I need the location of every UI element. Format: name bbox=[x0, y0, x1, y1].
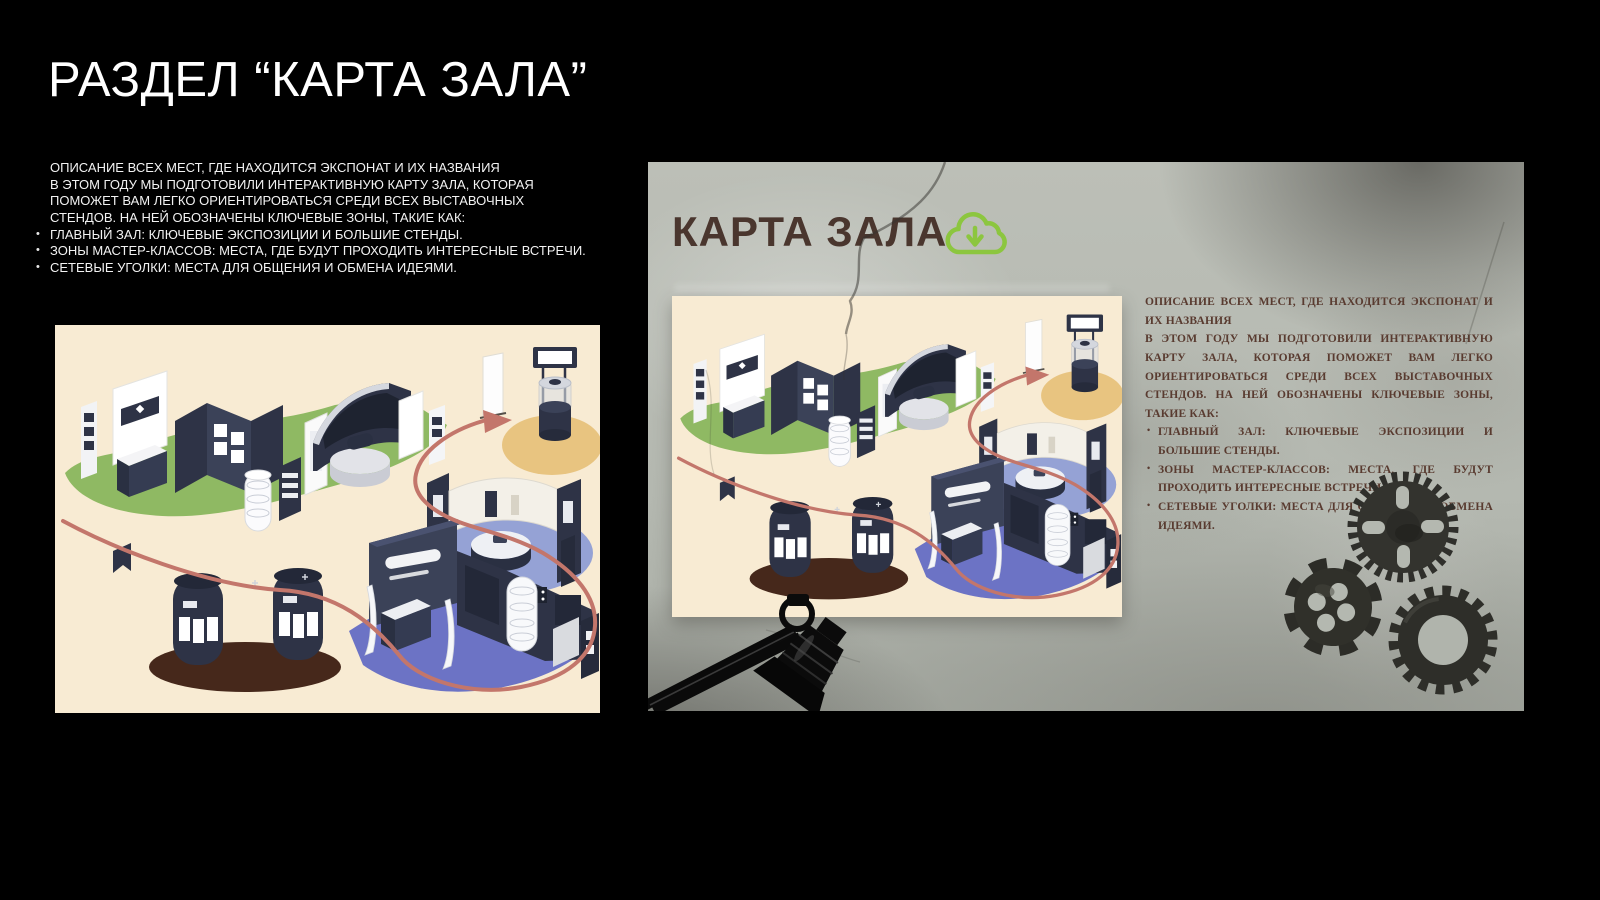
mockup-zone-list-item: ЗОНЫ МАСТЕР-КЛАССОВ: МЕСТА, ГДЕ БУДУТ ПР… bbox=[1145, 461, 1493, 498]
zone-list-item: СЕТЕВЫЕ УГОЛКИ: МЕСТА ДЛЯ ОБЩЕНИЯ И ОБМЕ… bbox=[36, 260, 592, 277]
zone-list-item: ЗОНЫ МАСТЕР-КЛАССОВ: МЕСТА, ГДЕ БУДУТ ПР… bbox=[36, 243, 592, 260]
faded-subtitle-placeholder bbox=[674, 284, 1110, 293]
zone-list-item: ГЛАВНЫЙ ЗАЛ: КЛЮЧЕВЫЕ ЭКСПОЗИЦИИ И БОЛЬШ… bbox=[36, 227, 592, 244]
mockup-title: КАРТА ЗАЛА bbox=[672, 208, 947, 256]
mockup-description-line-2: В ЭТОМ ГОДУ МЫ ПОДГОТОВИЛИ ИНТЕРАКТИВНУЮ… bbox=[1145, 330, 1493, 423]
zone-list: ГЛАВНЫЙ ЗАЛ: КЛЮЧЕВЫЕ ЭКСПОЗИЦИИ И БОЛЬШ… bbox=[36, 227, 592, 277]
mockup-description-line-1: ОПИСАНИЕ ВСЕХ МЕСТ, ГДЕ НАХОДИТСЯ ЭКСПОН… bbox=[1145, 293, 1493, 330]
gear-ring-icon bbox=[1389, 586, 1497, 694]
mockup-zone-list-item: СЕТЕВЫЕ УГОЛКИ: МЕСТА ДЛЯ ОБЩЕНИЯ И ОБМЕ… bbox=[1145, 498, 1493, 535]
hall-map-svg bbox=[55, 325, 600, 713]
description-line-2: В ЭТОМ ГОДУ МЫ ПОДГОТОВИЛИ ИНТЕРАКТИВНУЮ… bbox=[36, 177, 592, 227]
hall-map-illustration bbox=[55, 325, 600, 713]
mockup-zone-list: ГЛАВНЫЙ ЗАЛ: КЛЮЧЕВЫЕ ЭКСПОЗИЦИИ И БОЛЬШ… bbox=[1145, 423, 1493, 535]
gear-holes-icon bbox=[1282, 556, 1384, 658]
slide-description: ОПИСАНИЕ ВСЕХ МЕСТ, ГДЕ НАХОДИТСЯ ЭКСПОН… bbox=[36, 160, 592, 276]
mockup-hall-map-svg bbox=[672, 296, 1122, 617]
description-line-1: ОПИСАНИЕ ВСЕХ МЕСТ, ГДЕ НАХОДИТСЯ ЭКСПОН… bbox=[36, 160, 592, 177]
cloud-download-icon[interactable] bbox=[940, 206, 1010, 264]
slide: РАЗДЕЛ “КАРТА ЗАЛА” ОПИСАНИЕ ВСЕХ МЕСТ, … bbox=[0, 0, 1600, 900]
page-title: РАЗДЕЛ “КАРТА ЗАЛА” bbox=[48, 52, 587, 108]
mockup-zone-list-item: ГЛАВНЫЙ ЗАЛ: КЛЮЧЕВЫЕ ЭКСПОЗИЦИИ И БОЛЬШ… bbox=[1145, 423, 1493, 460]
page-mockup: КАРТА ЗАЛА ОПИСАНИЕ ВСЕХ МЕСТ, ГДЕ НАХОД… bbox=[648, 162, 1524, 711]
mockup-description: ОПИСАНИЕ ВСЕХ МЕСТ, ГДЕ НАХОДИТСЯ ЭКСПОН… bbox=[1145, 293, 1493, 535]
mockup-hall-map bbox=[672, 296, 1122, 617]
